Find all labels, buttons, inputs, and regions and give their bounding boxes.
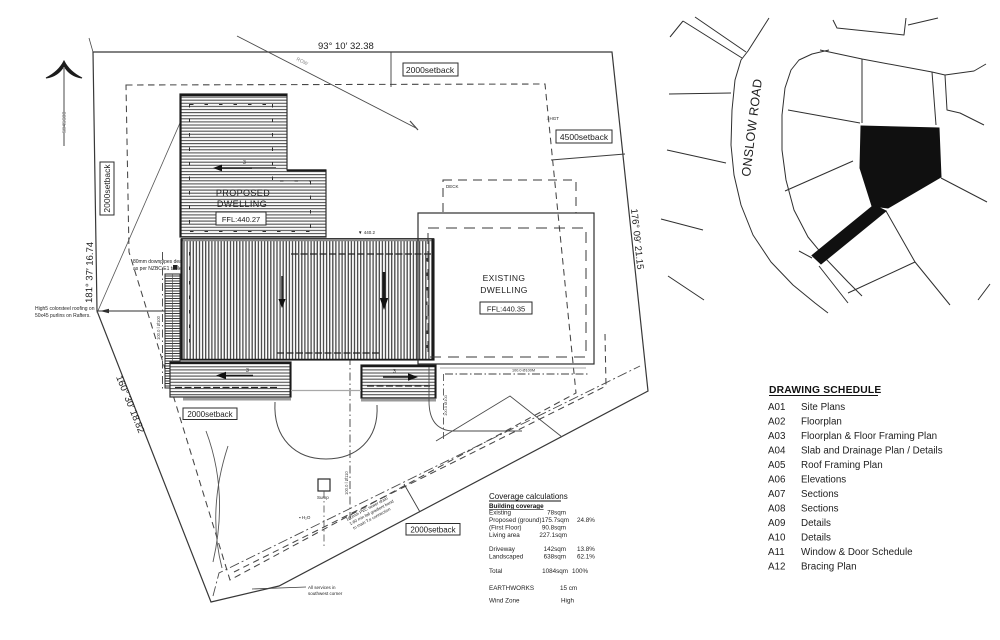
svg-text:93° 10′ 32.38: 93° 10′ 32.38	[318, 41, 374, 52]
svg-text:13.8%: 13.8%	[577, 546, 595, 553]
svg-text:Elevations: Elevations	[801, 475, 846, 486]
svg-text:Slab and Drainage Plan / Detai: Slab and Drainage Plan / Details	[801, 446, 943, 457]
svg-text:DECK: DECK	[446, 184, 459, 189]
svg-text:A01: A01	[768, 402, 785, 413]
svg-text:▼ 440.2: ▼ 440.2	[358, 230, 375, 235]
svg-text:100.0 l Ø100: 100.0 l Ø100	[156, 315, 161, 340]
svg-text:A09: A09	[768, 518, 785, 529]
svg-text:Total: Total	[489, 568, 502, 575]
svg-text:DWELLING: DWELLING	[217, 199, 267, 209]
svg-text:(First Floor): (First Floor)	[489, 525, 522, 532]
svg-text:Floorplan & Floor Framing Plan: Floorplan & Floor Framing Plan	[801, 431, 937, 442]
svg-text:High: High	[561, 598, 574, 605]
svg-text:3: 3	[243, 160, 246, 166]
svg-text:EXISTING: EXISTING	[483, 273, 526, 283]
svg-text:15 cm: 15 cm	[560, 585, 577, 592]
svg-text:Details: Details	[801, 518, 831, 529]
svg-text:Details: Details	[801, 533, 831, 544]
svg-text:High5 colorsteel roofing on: High5 colorsteel roofing on	[35, 306, 95, 312]
svg-text:↓ HGT: ↓ HGT	[546, 116, 559, 121]
svg-text:638sqm: 638sqm	[544, 554, 566, 561]
svg-text:227.1sqm: 227.1sqm	[539, 532, 567, 539]
svg-text:80mm downpipes dead: 80mm downpipes dead	[133, 259, 185, 265]
svg-text:142sqm: 142sqm	[544, 546, 566, 553]
svg-text:78sqm: 78sqm	[547, 510, 566, 517]
svg-text:A07: A07	[768, 489, 785, 500]
svg-text:Driveway: Driveway	[489, 546, 516, 553]
svg-text:24.8%: 24.8%	[577, 517, 595, 524]
svg-text:Living area: Living area	[489, 532, 520, 539]
svg-text:Bracing Plan: Bracing Plan	[801, 562, 857, 573]
svg-text:Window & Door Schedule: Window & Door Schedule	[801, 547, 913, 558]
svg-text:Landscaped: Landscaped	[489, 554, 524, 561]
svg-text:A12: A12	[768, 562, 785, 573]
svg-text:FFL:440.35: FFL:440.35	[487, 305, 525, 314]
svg-text:2000setback: 2000setback	[187, 410, 233, 419]
svg-text:Floorplan: Floorplan	[801, 417, 842, 428]
svg-text:Coverage calculations: Coverage calculations	[489, 492, 568, 501]
svg-text:A06: A06	[768, 475, 786, 486]
svg-text:90.8sqm: 90.8sqm	[542, 525, 566, 532]
svg-text:FFL:440.27: FFL:440.27	[222, 215, 260, 224]
svg-text:Roof Framing Plan: Roof Framing Plan	[801, 460, 883, 471]
svg-text:Sections: Sections	[801, 489, 839, 500]
svg-text:2000setback: 2000setback	[406, 65, 455, 75]
svg-text:A08: A08	[768, 504, 786, 515]
svg-text:DWELLING: DWELLING	[480, 285, 528, 295]
svg-text:Sump: Sump	[317, 495, 329, 500]
svg-text:southwest corner: southwest corner	[308, 591, 343, 596]
svg-text:A02: A02	[768, 417, 785, 428]
svg-text:3: 3	[393, 369, 396, 375]
svg-text:A03: A03	[768, 431, 786, 442]
svg-text:EARTHWORKS: EARTHWORKS	[489, 585, 534, 592]
svg-text:100%: 100%	[572, 568, 589, 575]
svg-text:▪ H₂O: ▪ H₂O	[299, 515, 311, 520]
svg-text:A05: A05	[768, 460, 786, 471]
svg-text:3: 3	[246, 368, 249, 374]
svg-text:175.7sqm: 175.7sqm	[541, 517, 569, 524]
svg-text:Proposed (ground): Proposed (ground)	[489, 517, 542, 524]
svg-text:DRAWING SCHEDULE: DRAWING SCHEDULE	[769, 385, 881, 396]
svg-text:A10: A10	[768, 533, 786, 544]
svg-text:Site Plans: Site Plans	[801, 402, 845, 413]
svg-text:4500setback: 4500setback	[560, 132, 609, 142]
svg-text:Sections: Sections	[801, 504, 839, 515]
svg-text:5045600: 5045600	[62, 112, 68, 133]
svg-text:2000setback: 2000setback	[410, 526, 456, 535]
svg-text:Wind Zone: Wind Zone	[489, 598, 520, 605]
svg-text:A04: A04	[768, 446, 786, 457]
svg-text:A11: A11	[768, 547, 785, 558]
svg-text:1084sqm: 1084sqm	[542, 568, 568, 575]
svg-text:Existing: Existing	[489, 510, 512, 517]
svg-text:All services in: All services in	[308, 585, 336, 590]
svg-text:2000setback: 2000setback	[102, 164, 112, 213]
svg-text:100.0 l Ø110: 100.0 l Ø110	[344, 471, 349, 495]
svg-text:100.0 Ø100: 100.0 Ø100	[443, 394, 448, 416]
svg-text:50x45 purlins on Rafters.: 50x45 purlins on Rafters.	[35, 313, 91, 319]
svg-text:PROPOSED: PROPOSED	[216, 188, 270, 198]
svg-text:100.0 Ø100M: 100.0 Ø100M	[512, 369, 535, 373]
svg-text:181° 37′ 16.74: 181° 37′ 16.74	[84, 242, 96, 303]
svg-text:62.1%: 62.1%	[577, 554, 595, 561]
